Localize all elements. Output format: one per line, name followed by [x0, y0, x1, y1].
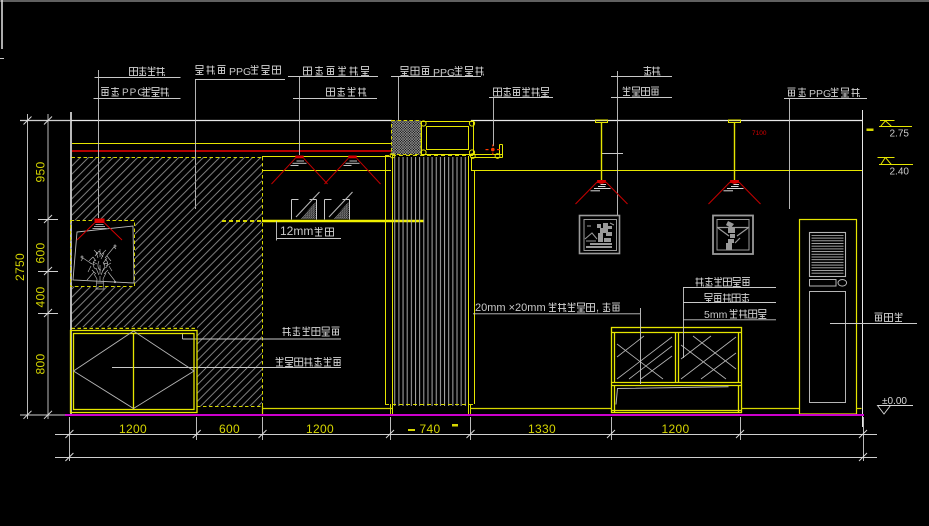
- svg-text:600: 600: [34, 243, 48, 264]
- svg-text:600: 600: [219, 422, 240, 436]
- svg-text:740: 740: [420, 422, 441, 436]
- svg-text:12mm: 12mm: [280, 224, 313, 238]
- svg-text:1200: 1200: [662, 422, 690, 436]
- svg-text:400: 400: [34, 287, 48, 308]
- svg-text:800: 800: [34, 354, 48, 375]
- svg-text:2750: 2750: [13, 253, 27, 281]
- svg-text:1200: 1200: [306, 422, 334, 436]
- svg-text:PPG: PPG: [229, 66, 251, 78]
- svg-text:,: ,: [596, 302, 599, 314]
- svg-text:5mm: 5mm: [704, 309, 728, 321]
- svg-text:7100: 7100: [752, 130, 767, 137]
- svg-text:2.40: 2.40: [890, 167, 910, 178]
- svg-text:2.75: 2.75: [890, 129, 910, 140]
- svg-text:950: 950: [34, 162, 48, 183]
- svg-text:PPG: PPG: [433, 67, 455, 79]
- svg-text:1330: 1330: [528, 422, 556, 436]
- svg-text:1200: 1200: [119, 422, 147, 436]
- svg-text:20mm ×20mm: 20mm ×20mm: [475, 302, 546, 314]
